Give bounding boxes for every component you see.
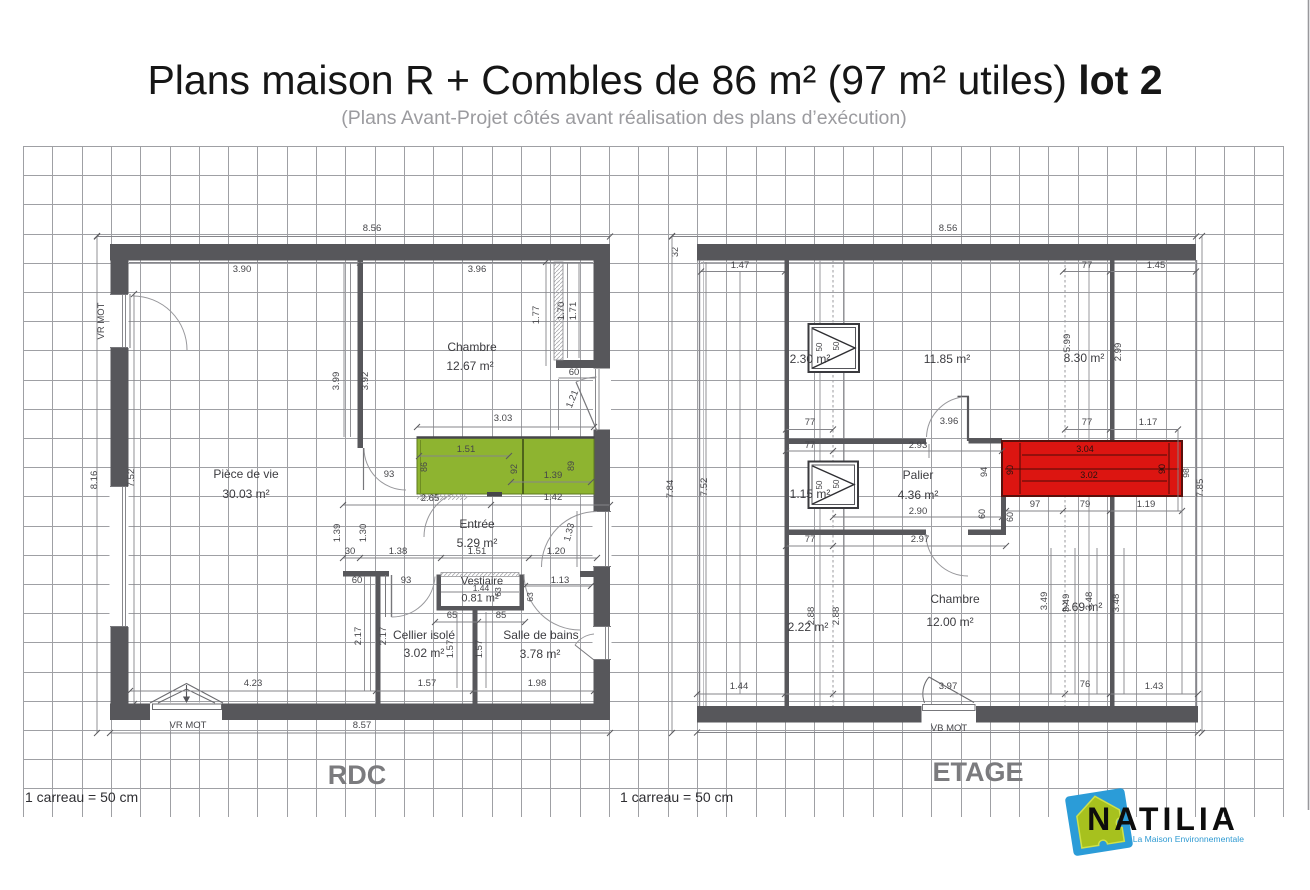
svg-text:2.22 m²: 2.22 m² [788,620,829,634]
svg-text:Plans maison R + Combles de 86: Plans maison R + Combles de 86 m² (97 m²… [147,57,1162,103]
svg-text:7.84: 7.84 [665,480,676,499]
svg-text:1.30: 1.30 [358,524,369,543]
svg-text:12.00 m²: 12.00 m² [926,615,973,629]
svg-text:1.17: 1.17 [1139,417,1158,428]
svg-text:VB MOT: VB MOT [931,723,968,734]
svg-text:1.71: 1.71 [568,302,579,321]
svg-text:3.02: 3.02 [1080,470,1098,480]
svg-text:7.85: 7.85 [1195,479,1206,498]
svg-text:1 carreau = 50 cm: 1 carreau = 50 cm [620,789,733,805]
svg-text:2.17: 2.17 [353,627,364,646]
svg-text:3.92: 3.92 [360,372,371,391]
svg-text:60: 60 [977,509,987,519]
svg-text:1.57: 1.57 [418,678,437,689]
svg-text:1.51: 1.51 [457,444,476,455]
svg-text:Salle de bains: Salle de bains [503,628,578,642]
svg-text:60: 60 [569,367,580,378]
svg-text:1.57: 1.57 [445,640,456,659]
svg-text:8.16: 8.16 [89,471,100,490]
svg-text:0.81 m²: 0.81 m² [461,593,499,605]
svg-text:4.36 m²: 4.36 m² [898,488,939,502]
svg-text:3.97: 3.97 [939,681,958,692]
svg-text:1.98: 1.98 [528,678,547,689]
svg-text:8.56: 8.56 [939,223,958,234]
svg-text:1.39: 1.39 [332,524,343,543]
svg-text:1.13: 1.13 [551,575,570,586]
svg-text:1.44: 1.44 [473,583,490,593]
svg-text:4.23: 4.23 [244,678,263,689]
svg-text:1.44: 1.44 [730,681,749,692]
svg-text:1 carreau = 50 cm: 1 carreau = 50 cm [25,789,138,805]
svg-text:93: 93 [401,575,412,586]
svg-text:Cellier isolé: Cellier isolé [393,628,455,642]
svg-text:Chambre: Chambre [447,340,497,354]
svg-text:50: 50 [815,342,824,351]
svg-text:1.38: 1.38 [389,546,408,557]
svg-text:VR MOT: VR MOT [170,720,207,731]
svg-text:93: 93 [384,469,395,480]
svg-text:90: 90 [1157,464,1167,474]
svg-text:77: 77 [805,534,816,545]
svg-text:85: 85 [496,610,507,621]
svg-text:1.70: 1.70 [556,302,567,321]
svg-text:32: 32 [670,247,680,257]
svg-text:92: 92 [509,464,519,474]
svg-text:3.99: 3.99 [331,372,342,391]
svg-text:77: 77 [805,417,816,428]
svg-text:2.97: 2.97 [911,534,930,545]
svg-text:(Plans Avant-Projet côtés avan: (Plans Avant-Projet côtés avant réalisat… [341,107,906,129]
svg-text:1.57: 1.57 [474,640,485,659]
svg-text:3.48: 3.48 [1111,594,1122,613]
svg-text:ETAGE: ETAGE [932,757,1023,787]
svg-text:86: 86 [419,462,429,472]
svg-text:3.96: 3.96 [940,416,959,427]
svg-text:1.19: 1.19 [1137,499,1156,510]
svg-text:77: 77 [1082,260,1093,271]
svg-text:2.90: 2.90 [909,506,928,517]
svg-text:2.65: 2.65 [421,493,440,504]
svg-text:50: 50 [832,341,841,350]
svg-text:NATILIA: NATILIA [1087,801,1239,837]
svg-text:60: 60 [352,575,363,586]
svg-text:5.29 m²: 5.29 m² [457,536,498,550]
svg-text:VR MOT: VR MOT [96,302,107,339]
svg-text:3.02 m²: 3.02 m² [404,646,445,660]
svg-text:2.17: 2.17 [378,627,389,646]
svg-text:8.30 m²: 8.30 m² [1064,351,1105,365]
svg-text:RDC: RDC [328,760,387,790]
svg-text:76: 76 [1080,679,1091,690]
svg-text:5.99: 5.99 [1062,334,1073,353]
svg-text:30.03 m²: 30.03 m² [222,487,269,501]
svg-text:1.15 m²: 1.15 m² [790,487,831,501]
svg-text:3.03: 3.03 [494,413,513,424]
svg-text:2.69 m²: 2.69 m² [1062,600,1103,614]
svg-text:60: 60 [1005,512,1015,522]
svg-text:98: 98 [1181,468,1191,478]
svg-text:50: 50 [832,479,841,488]
svg-text:7.52: 7.52 [699,478,710,497]
svg-text:1.42: 1.42 [544,492,563,503]
svg-text:3.96: 3.96 [468,264,487,275]
svg-text:30: 30 [345,546,356,557]
svg-text:2.99: 2.99 [1113,343,1124,362]
svg-text:3.49: 3.49 [1039,592,1050,611]
svg-text:77: 77 [1082,417,1093,428]
svg-text:65: 65 [447,610,458,621]
svg-text:1.45: 1.45 [1147,260,1166,271]
svg-text:94: 94 [979,467,989,477]
svg-text:2.30 m²: 2.30 m² [790,352,831,366]
svg-text:97: 97 [1030,499,1041,510]
svg-text:8.56: 8.56 [363,223,382,234]
svg-text:3.78 m²: 3.78 m² [520,647,561,661]
svg-text:63: 63 [525,592,535,602]
svg-text:89: 89 [566,461,576,471]
svg-text:Palier: Palier [903,468,934,482]
svg-text:Pièce de vie: Pièce de vie [213,467,279,481]
svg-text:3.90: 3.90 [233,264,252,275]
svg-text:12.67 m²: 12.67 m² [446,359,493,373]
svg-text:3.04: 3.04 [1076,444,1094,454]
svg-text:8.57: 8.57 [353,720,372,731]
svg-text:1.39: 1.39 [544,470,563,481]
svg-text:11.85 m²: 11.85 m² [924,352,970,366]
svg-text:2.93: 2.93 [909,440,928,451]
svg-text:Chambre: Chambre [930,592,980,606]
svg-text:2.88: 2.88 [831,607,842,626]
svg-text:La Maison Environnementale: La Maison Environnementale [1133,834,1245,844]
svg-text:1.47: 1.47 [731,260,750,271]
svg-text:1.20: 1.20 [547,546,566,557]
svg-text:1.77: 1.77 [531,306,542,325]
svg-text:1.43: 1.43 [1145,681,1164,692]
svg-text:77: 77 [805,440,816,451]
svg-text:Entrée: Entrée [459,517,495,531]
svg-text:90: 90 [1005,465,1015,475]
svg-text:79: 79 [1080,499,1091,510]
svg-text:7.52: 7.52 [126,469,137,488]
